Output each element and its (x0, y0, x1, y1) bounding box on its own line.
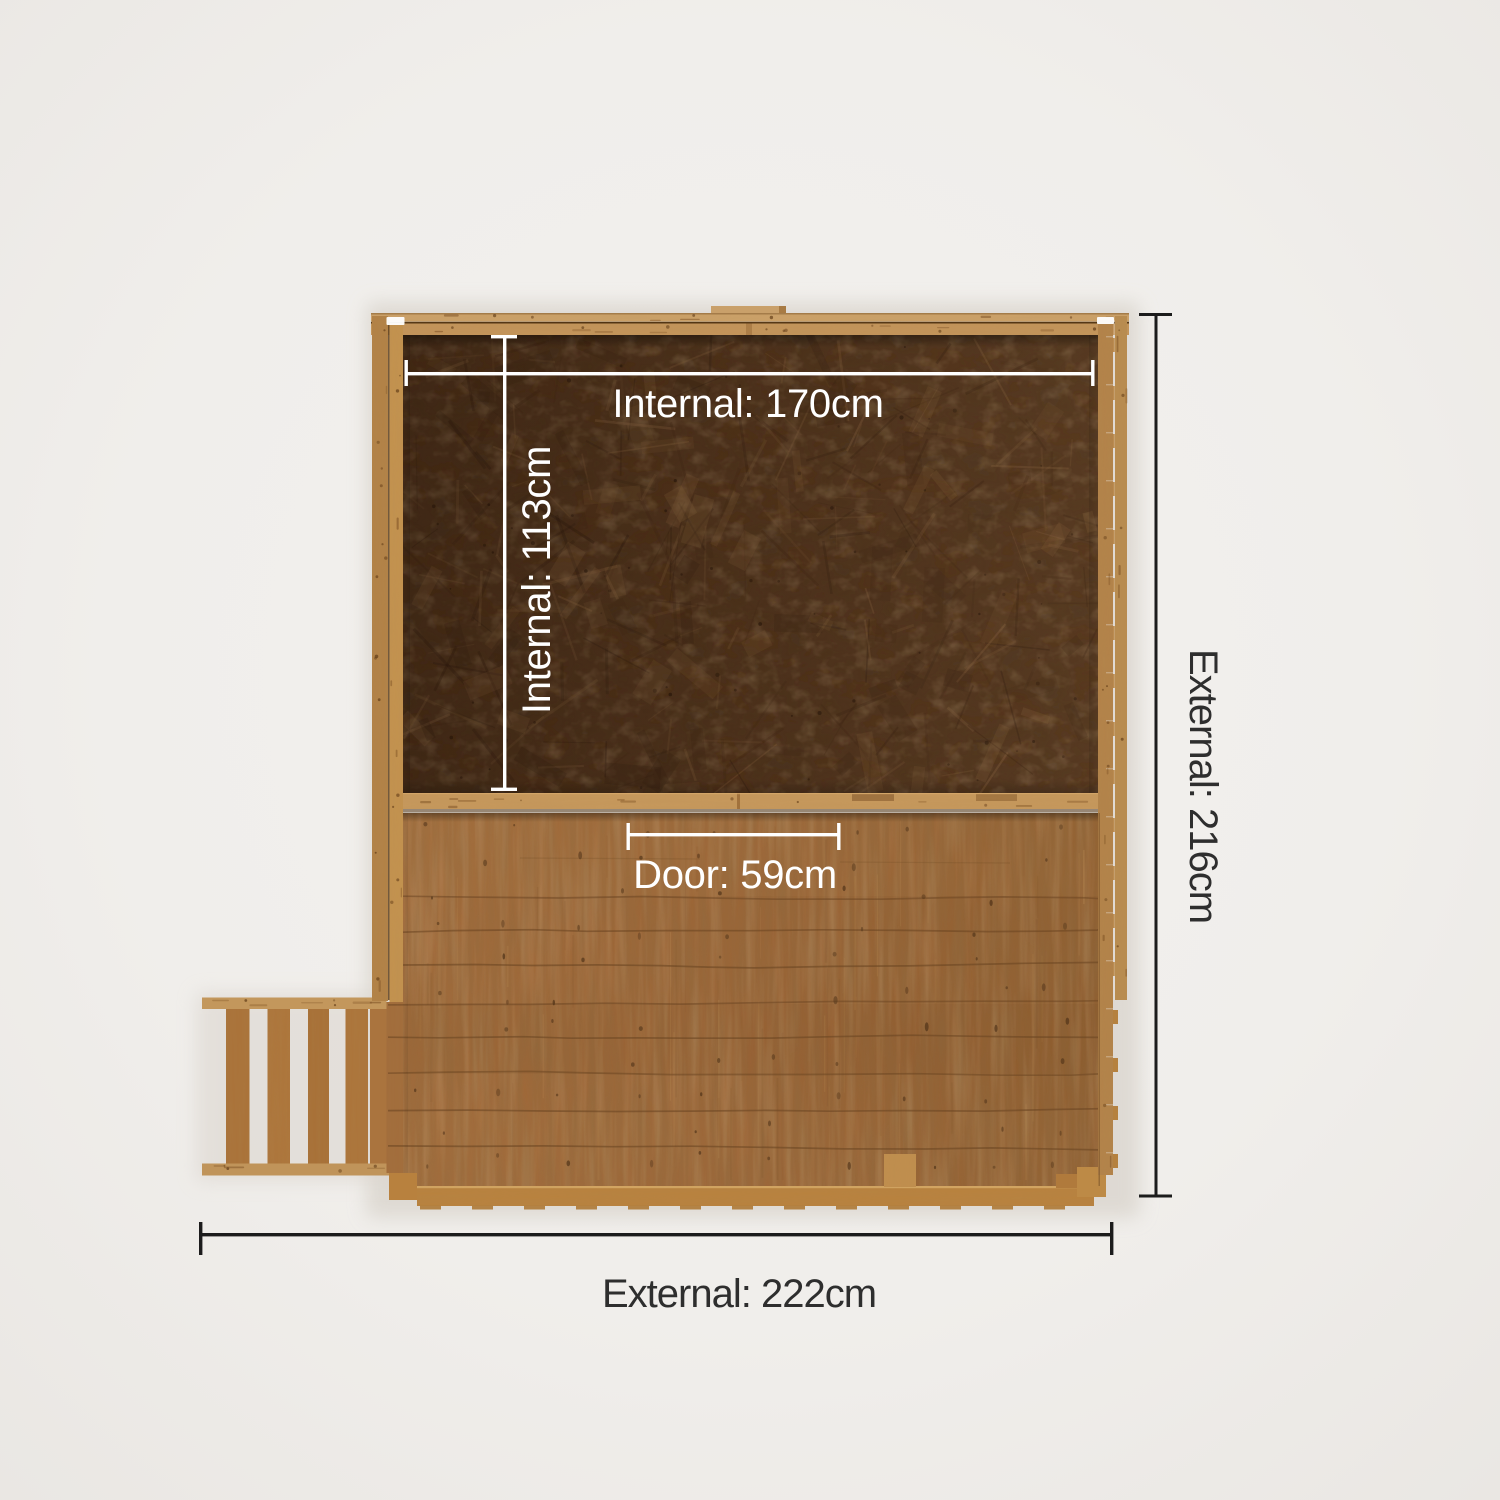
svg-text:Internal: 170cm: Internal: 170cm (612, 382, 883, 426)
svg-text:Door: 59cm: Door: 59cm (633, 853, 837, 897)
svg-text:Internal: 113cm: Internal: 113cm (515, 446, 559, 714)
svg-text:External: 222cm: External: 222cm (602, 1272, 876, 1316)
svg-text:External: 216cm: External: 216cm (1181, 649, 1225, 923)
